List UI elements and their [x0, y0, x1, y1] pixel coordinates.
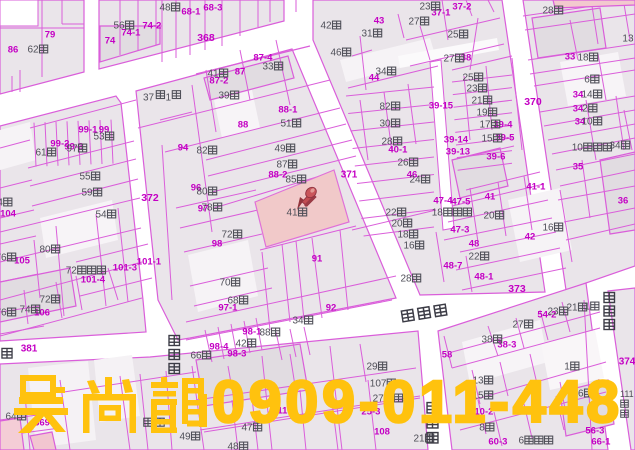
- svg-text:66: 66: [191, 351, 203, 362]
- svg-text:37-2: 37-2: [452, 1, 471, 12]
- svg-text:43: 43: [374, 15, 385, 26]
- svg-text:105: 105: [14, 255, 31, 266]
- svg-text:92: 92: [326, 302, 337, 313]
- svg-text:371: 371: [341, 170, 358, 181]
- svg-text:6: 6: [519, 436, 525, 447]
- svg-text:61: 61: [36, 148, 48, 159]
- svg-text:17: 17: [480, 120, 492, 131]
- svg-text:13: 13: [622, 34, 634, 45]
- svg-text:26: 26: [398, 158, 410, 169]
- svg-text:54: 54: [96, 210, 108, 221]
- svg-text:72: 72: [222, 230, 234, 241]
- svg-text:38: 38: [482, 335, 494, 346]
- svg-text:39: 39: [219, 91, 231, 102]
- svg-text:370: 370: [524, 96, 542, 108]
- svg-text:1: 1: [166, 93, 172, 104]
- svg-text:39-13: 39-13: [446, 146, 470, 157]
- svg-text:34: 34: [610, 141, 622, 152]
- svg-text:86: 86: [8, 44, 19, 55]
- svg-text:20: 20: [392, 219, 404, 230]
- svg-text:28: 28: [543, 6, 555, 17]
- svg-text:6: 6: [584, 75, 590, 86]
- svg-text:59: 59: [82, 188, 94, 199]
- svg-text:30: 30: [380, 119, 392, 130]
- svg-text:80: 80: [197, 187, 209, 198]
- svg-text:23: 23: [548, 307, 560, 318]
- svg-text:42: 42: [525, 231, 536, 242]
- svg-text:87: 87: [277, 160, 289, 171]
- svg-text:42: 42: [321, 21, 333, 32]
- svg-text:68: 68: [228, 296, 240, 307]
- svg-text:22: 22: [469, 252, 481, 263]
- svg-text:33: 33: [565, 51, 576, 62]
- svg-text:27: 27: [444, 54, 456, 65]
- svg-text:38-3: 38-3: [497, 339, 516, 350]
- svg-text:27: 27: [409, 17, 421, 28]
- svg-text:41: 41: [208, 69, 220, 80]
- svg-text:85: 85: [286, 175, 298, 186]
- svg-text:15: 15: [482, 134, 494, 145]
- svg-text:87: 87: [235, 66, 246, 77]
- svg-text:68-1: 68-1: [181, 6, 201, 17]
- svg-text:22: 22: [386, 208, 398, 219]
- svg-text:41: 41: [485, 191, 496, 202]
- svg-text:21: 21: [472, 96, 484, 107]
- svg-text:51: 51: [281, 119, 293, 130]
- svg-text:37-1: 37-1: [431, 7, 451, 18]
- svg-text:68-3: 68-3: [203, 2, 222, 13]
- svg-text:70: 70: [220, 278, 232, 289]
- svg-text:98-4: 98-4: [209, 341, 229, 352]
- svg-text:368: 368: [197, 32, 215, 44]
- svg-text:19: 19: [477, 108, 489, 119]
- svg-text:76: 76: [0, 253, 7, 264]
- svg-text:48-1: 48-1: [474, 271, 494, 282]
- svg-text:72: 72: [40, 295, 52, 306]
- svg-text:58: 58: [442, 349, 453, 360]
- svg-text:80: 80: [40, 245, 52, 256]
- svg-text:35: 35: [573, 161, 584, 172]
- svg-text:0909-011-448: 0909-011-448: [212, 369, 623, 435]
- svg-text:101-4: 101-4: [81, 274, 106, 285]
- svg-text:76: 76: [0, 308, 7, 319]
- svg-text:56: 56: [114, 21, 126, 32]
- svg-text:23: 23: [467, 84, 479, 95]
- svg-text:41: 41: [287, 208, 299, 219]
- svg-text:28: 28: [382, 137, 394, 148]
- svg-text:20: 20: [484, 211, 496, 222]
- svg-text:41-1: 41-1: [526, 181, 546, 192]
- svg-text:25: 25: [448, 30, 460, 41]
- svg-text:78: 78: [202, 203, 214, 214]
- svg-text:381: 381: [21, 344, 38, 355]
- svg-text:33: 33: [263, 62, 275, 73]
- svg-text:39-6: 39-6: [486, 151, 505, 162]
- svg-text:97: 97: [67, 144, 79, 155]
- svg-text:60-3: 60-3: [488, 436, 507, 447]
- svg-text:23: 23: [420, 2, 432, 13]
- svg-text:34: 34: [376, 67, 388, 78]
- svg-text:74: 74: [20, 305, 32, 316]
- svg-text:18: 18: [432, 208, 444, 219]
- svg-text:66-1: 66-1: [591, 436, 611, 447]
- svg-text:21: 21: [414, 434, 426, 445]
- svg-text:91: 91: [312, 253, 323, 264]
- svg-text:37: 37: [143, 93, 155, 104]
- svg-text:46: 46: [331, 48, 343, 59]
- svg-text:372: 372: [141, 192, 159, 204]
- svg-text:79: 79: [45, 29, 56, 40]
- svg-text:47-3: 47-3: [450, 224, 469, 235]
- svg-text:31: 31: [362, 29, 374, 40]
- svg-text:373: 373: [508, 283, 526, 295]
- svg-text:48: 48: [469, 238, 480, 249]
- svg-text:104: 104: [0, 208, 17, 219]
- svg-text:374: 374: [619, 357, 635, 368]
- svg-text:10: 10: [572, 143, 584, 154]
- svg-text:74-2: 74-2: [142, 20, 161, 31]
- svg-text:42: 42: [236, 339, 248, 350]
- svg-text:88: 88: [238, 119, 249, 130]
- svg-text:74: 74: [105, 35, 116, 46]
- svg-text:49: 49: [180, 432, 192, 443]
- svg-text:36: 36: [618, 195, 629, 206]
- svg-text:34: 34: [293, 316, 305, 327]
- svg-text:88-1: 88-1: [278, 104, 298, 115]
- svg-text:4: 4: [0, 198, 3, 209]
- svg-text:62: 62: [28, 45, 40, 56]
- svg-text:21: 21: [567, 303, 579, 314]
- svg-text:18: 18: [398, 230, 410, 241]
- svg-text:98-3: 98-3: [227, 348, 246, 359]
- svg-text:72: 72: [66, 266, 78, 277]
- svg-text:48: 48: [160, 3, 172, 14]
- svg-text:25: 25: [463, 73, 475, 84]
- svg-text:16: 16: [404, 241, 416, 252]
- svg-text:101-3: 101-3: [113, 262, 137, 273]
- svg-text:94: 94: [178, 142, 189, 153]
- svg-text:48: 48: [228, 442, 240, 450]
- svg-text:39-14: 39-14: [444, 134, 469, 145]
- svg-text:48-7: 48-7: [443, 260, 462, 271]
- svg-text:16: 16: [543, 223, 555, 234]
- svg-text:10: 10: [582, 117, 594, 128]
- svg-text:39-15: 39-15: [429, 100, 454, 111]
- svg-text:28: 28: [401, 274, 413, 285]
- svg-text:14: 14: [582, 90, 594, 101]
- svg-text:53: 53: [94, 132, 106, 143]
- svg-text:27: 27: [513, 320, 525, 331]
- svg-text:47-5: 47-5: [451, 196, 471, 207]
- svg-text:82: 82: [380, 102, 392, 113]
- svg-text:1: 1: [584, 302, 590, 313]
- svg-text:24: 24: [410, 175, 422, 186]
- svg-text:101-1: 101-1: [137, 256, 162, 267]
- svg-text:88: 88: [260, 328, 272, 339]
- svg-text:18: 18: [578, 53, 590, 64]
- svg-text:55: 55: [80, 172, 92, 183]
- svg-text:47-4: 47-4: [433, 195, 453, 206]
- svg-text:82: 82: [197, 146, 209, 157]
- svg-text:2: 2: [582, 104, 588, 115]
- svg-text:49: 49: [275, 144, 287, 155]
